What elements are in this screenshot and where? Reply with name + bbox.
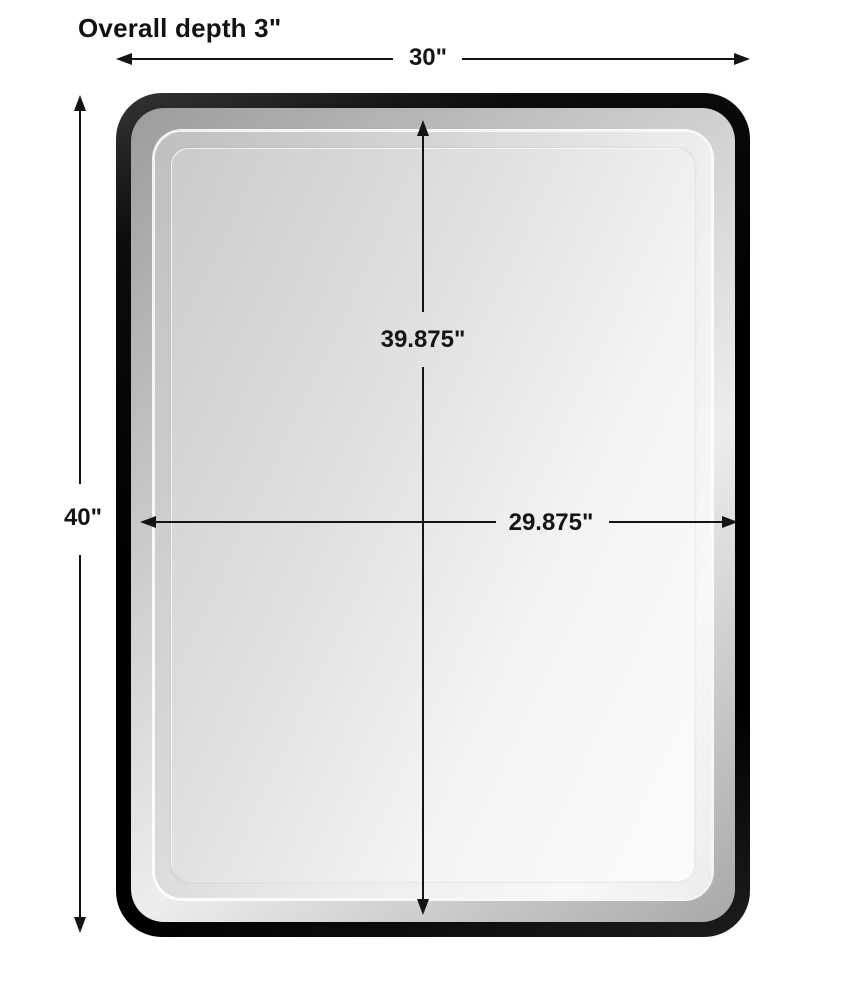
dimension-line-segment	[79, 109, 81, 484]
arrowhead-right-icon	[734, 53, 750, 65]
dimension-line-segment	[130, 58, 393, 60]
dimension-mirror-width-label: 29.875"	[481, 508, 621, 538]
dimension-line-segment	[422, 134, 424, 312]
dimension-line-segment	[79, 555, 81, 917]
dimension-overlay: 30" 40" 39.875" 29.875"	[0, 0, 868, 1000]
arrowhead-right-icon	[722, 516, 738, 528]
product-dimension-diagram: Overall depth 3" 30" 40"	[0, 0, 868, 1000]
dimension-overall-height-label: 40"	[40, 503, 126, 533]
dimension-overall-width-label: 30"	[393, 43, 463, 73]
dimension-line-segment	[422, 367, 424, 899]
dimension-line-segment	[609, 521, 724, 523]
arrowhead-down-icon	[417, 899, 429, 915]
arrowhead-down-icon	[74, 917, 86, 933]
dimension-line-segment	[462, 58, 736, 60]
dimension-mirror-height-label: 39.875"	[352, 325, 494, 355]
dimension-line-segment	[154, 521, 496, 523]
